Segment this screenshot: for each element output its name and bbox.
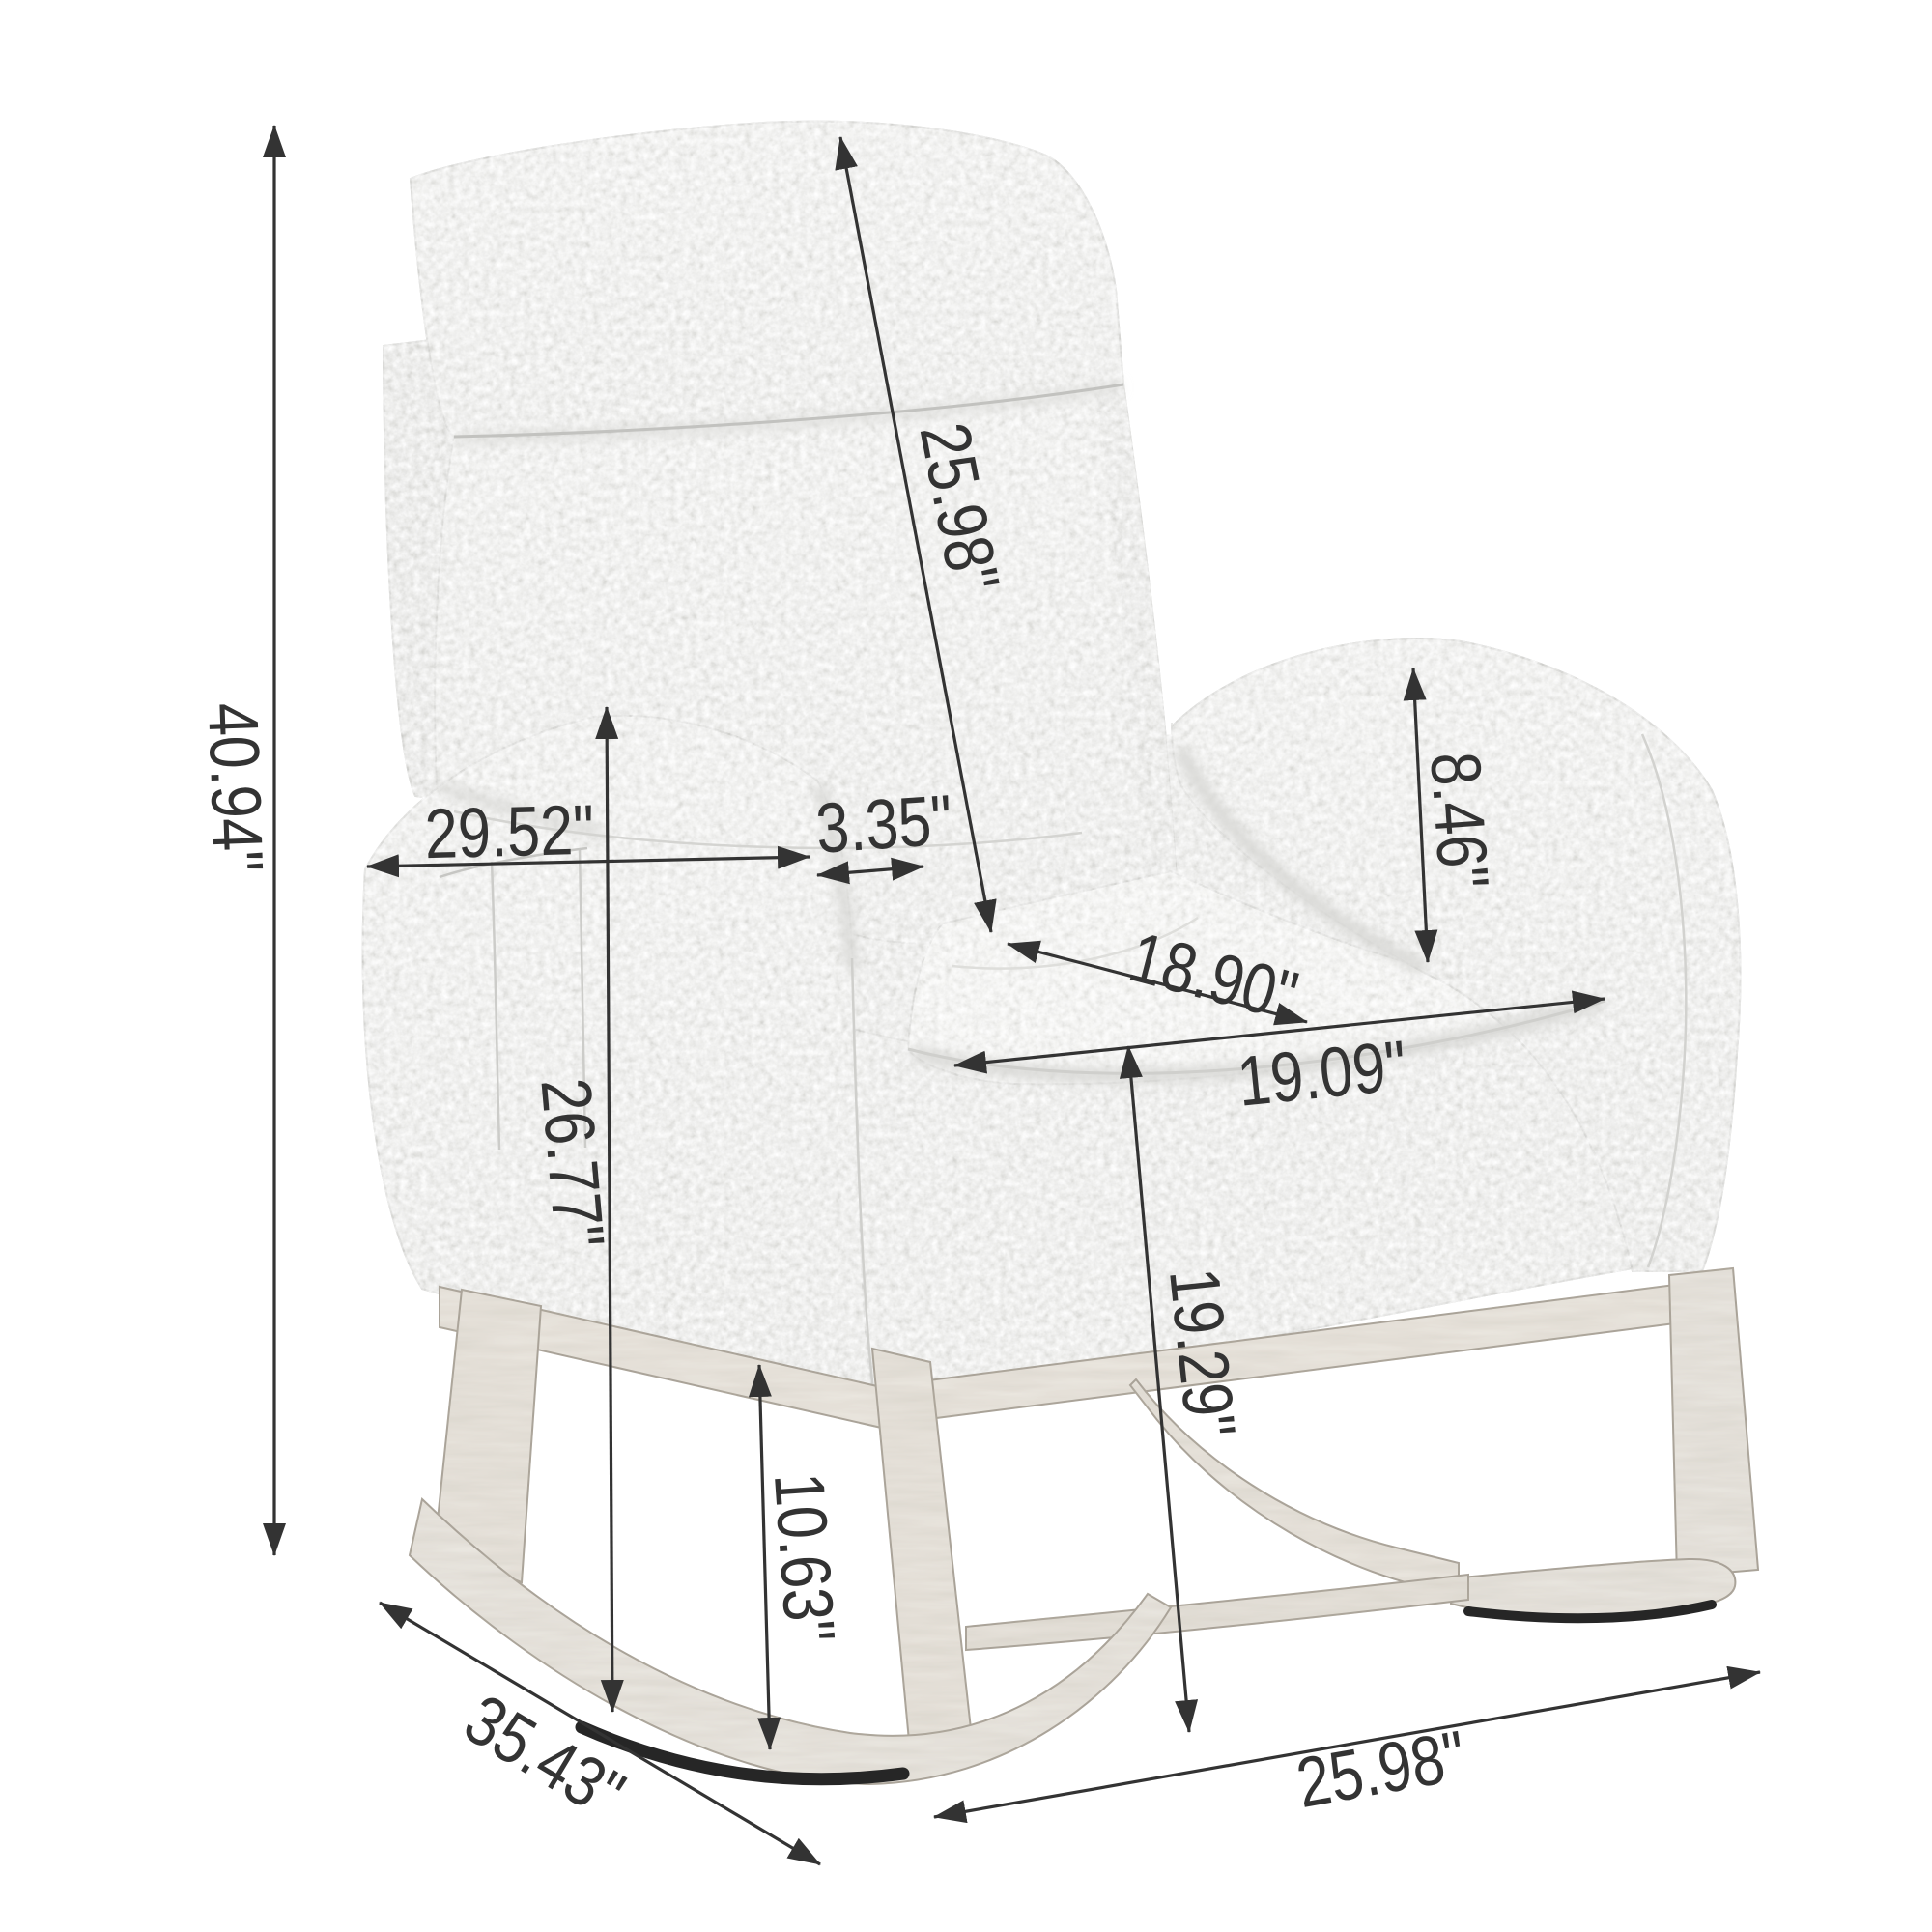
svg-text:26.77": 26.77"	[526, 1075, 618, 1251]
svg-text:10.63": 10.63"	[759, 1470, 849, 1644]
svg-text:3.35": 3.35"	[813, 781, 954, 868]
svg-text:29.52": 29.52"	[424, 791, 595, 874]
svg-text:8.46": 8.46"	[1415, 750, 1503, 891]
svg-text:40.94": 40.94"	[193, 701, 277, 873]
